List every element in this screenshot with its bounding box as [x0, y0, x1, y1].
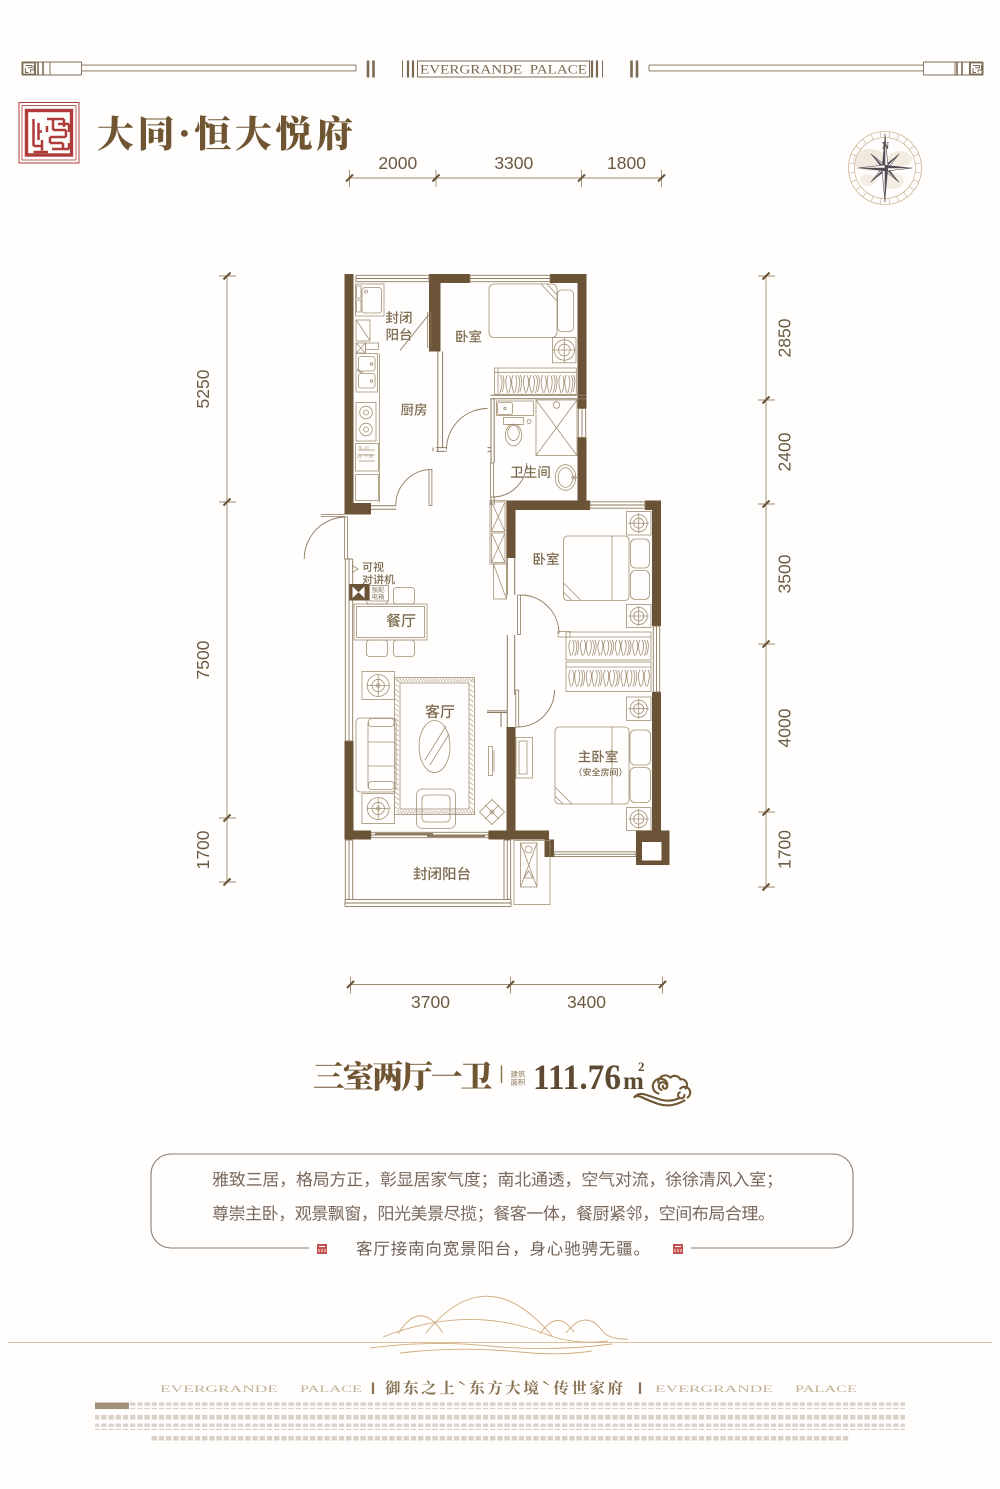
svg-text:3500: 3500: [775, 554, 795, 593]
svg-text:EVERGRANDE: EVERGRANDE: [655, 1385, 773, 1395]
svg-text:N: N: [882, 141, 890, 152]
svg-text:4000: 4000: [775, 708, 795, 747]
svg-text:2000: 2000: [378, 153, 417, 173]
svg-text:111.76: 111.76: [533, 1057, 621, 1097]
svg-text:3300: 3300: [494, 153, 533, 173]
svg-text:7500: 7500: [193, 640, 213, 679]
svg-text:EVERGRANDE: EVERGRANDE: [160, 1385, 278, 1395]
svg-text:3700: 3700: [411, 992, 450, 1012]
svg-text:2400: 2400: [775, 432, 795, 471]
svg-text:5250: 5250: [193, 369, 213, 408]
svg-text:PALACE: PALACE: [795, 1385, 857, 1395]
svg-text:1800: 1800: [607, 153, 646, 173]
svg-text:2: 2: [638, 1059, 645, 1074]
svg-text:2850: 2850: [775, 318, 795, 357]
svg-text:PALACE: PALACE: [300, 1385, 362, 1395]
svg-text:1700: 1700: [775, 830, 795, 869]
svg-text:3400: 3400: [567, 992, 606, 1012]
svg-text:1700: 1700: [193, 830, 213, 869]
svg-text:EVERGRANDE PALACE: EVERGRANDE PALACE: [420, 63, 587, 77]
